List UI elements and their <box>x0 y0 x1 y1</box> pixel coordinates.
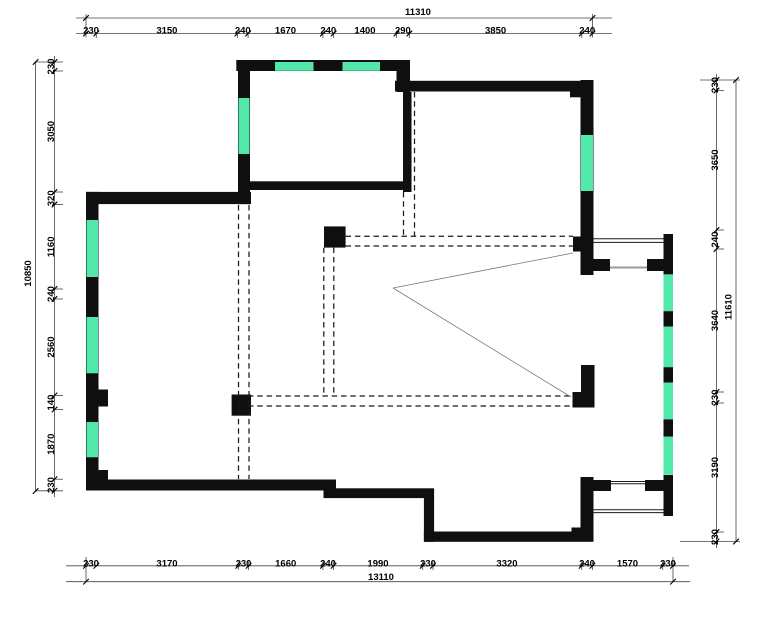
svg-text:230: 230 <box>46 477 57 493</box>
svg-text:240: 240 <box>710 232 721 248</box>
svg-text:3150: 3150 <box>156 26 177 37</box>
svg-text:230: 230 <box>710 77 721 93</box>
svg-text:3320: 3320 <box>496 559 517 570</box>
svg-text:320: 320 <box>46 190 57 206</box>
svg-text:230: 230 <box>660 559 676 570</box>
svg-text:230: 230 <box>83 26 99 37</box>
svg-text:10850: 10850 <box>23 260 34 286</box>
svg-text:1570: 1570 <box>617 559 638 570</box>
svg-text:240: 240 <box>320 26 336 37</box>
svg-text:240: 240 <box>579 26 595 37</box>
svg-text:230: 230 <box>710 529 721 545</box>
svg-text:3850: 3850 <box>485 26 506 37</box>
svg-text:11610: 11610 <box>724 294 735 320</box>
svg-text:3170: 3170 <box>156 559 177 570</box>
svg-text:3640: 3640 <box>710 310 721 331</box>
svg-text:3050: 3050 <box>46 121 57 142</box>
svg-text:240: 240 <box>579 559 595 570</box>
svg-text:230: 230 <box>46 59 57 75</box>
svg-text:1870: 1870 <box>46 434 57 455</box>
svg-text:230: 230 <box>420 559 436 570</box>
svg-text:240: 240 <box>46 286 57 302</box>
svg-text:3190: 3190 <box>710 457 721 478</box>
svg-text:11310: 11310 <box>405 7 431 18</box>
svg-text:13110: 13110 <box>368 572 394 583</box>
svg-text:240: 240 <box>235 26 251 37</box>
svg-text:2560: 2560 <box>46 336 57 357</box>
svg-text:240: 240 <box>320 559 336 570</box>
svg-text:140: 140 <box>46 395 57 411</box>
svg-text:230: 230 <box>710 390 721 406</box>
svg-text:3650: 3650 <box>710 149 721 170</box>
svg-text:230: 230 <box>236 559 252 570</box>
svg-text:1660: 1660 <box>275 559 296 570</box>
svg-text:1160: 1160 <box>46 236 57 257</box>
svg-text:1990: 1990 <box>367 559 388 570</box>
svg-text:230: 230 <box>83 559 99 570</box>
svg-text:1400: 1400 <box>354 26 375 37</box>
svg-text:1670: 1670 <box>275 26 296 37</box>
svg-text:290: 290 <box>395 26 411 37</box>
